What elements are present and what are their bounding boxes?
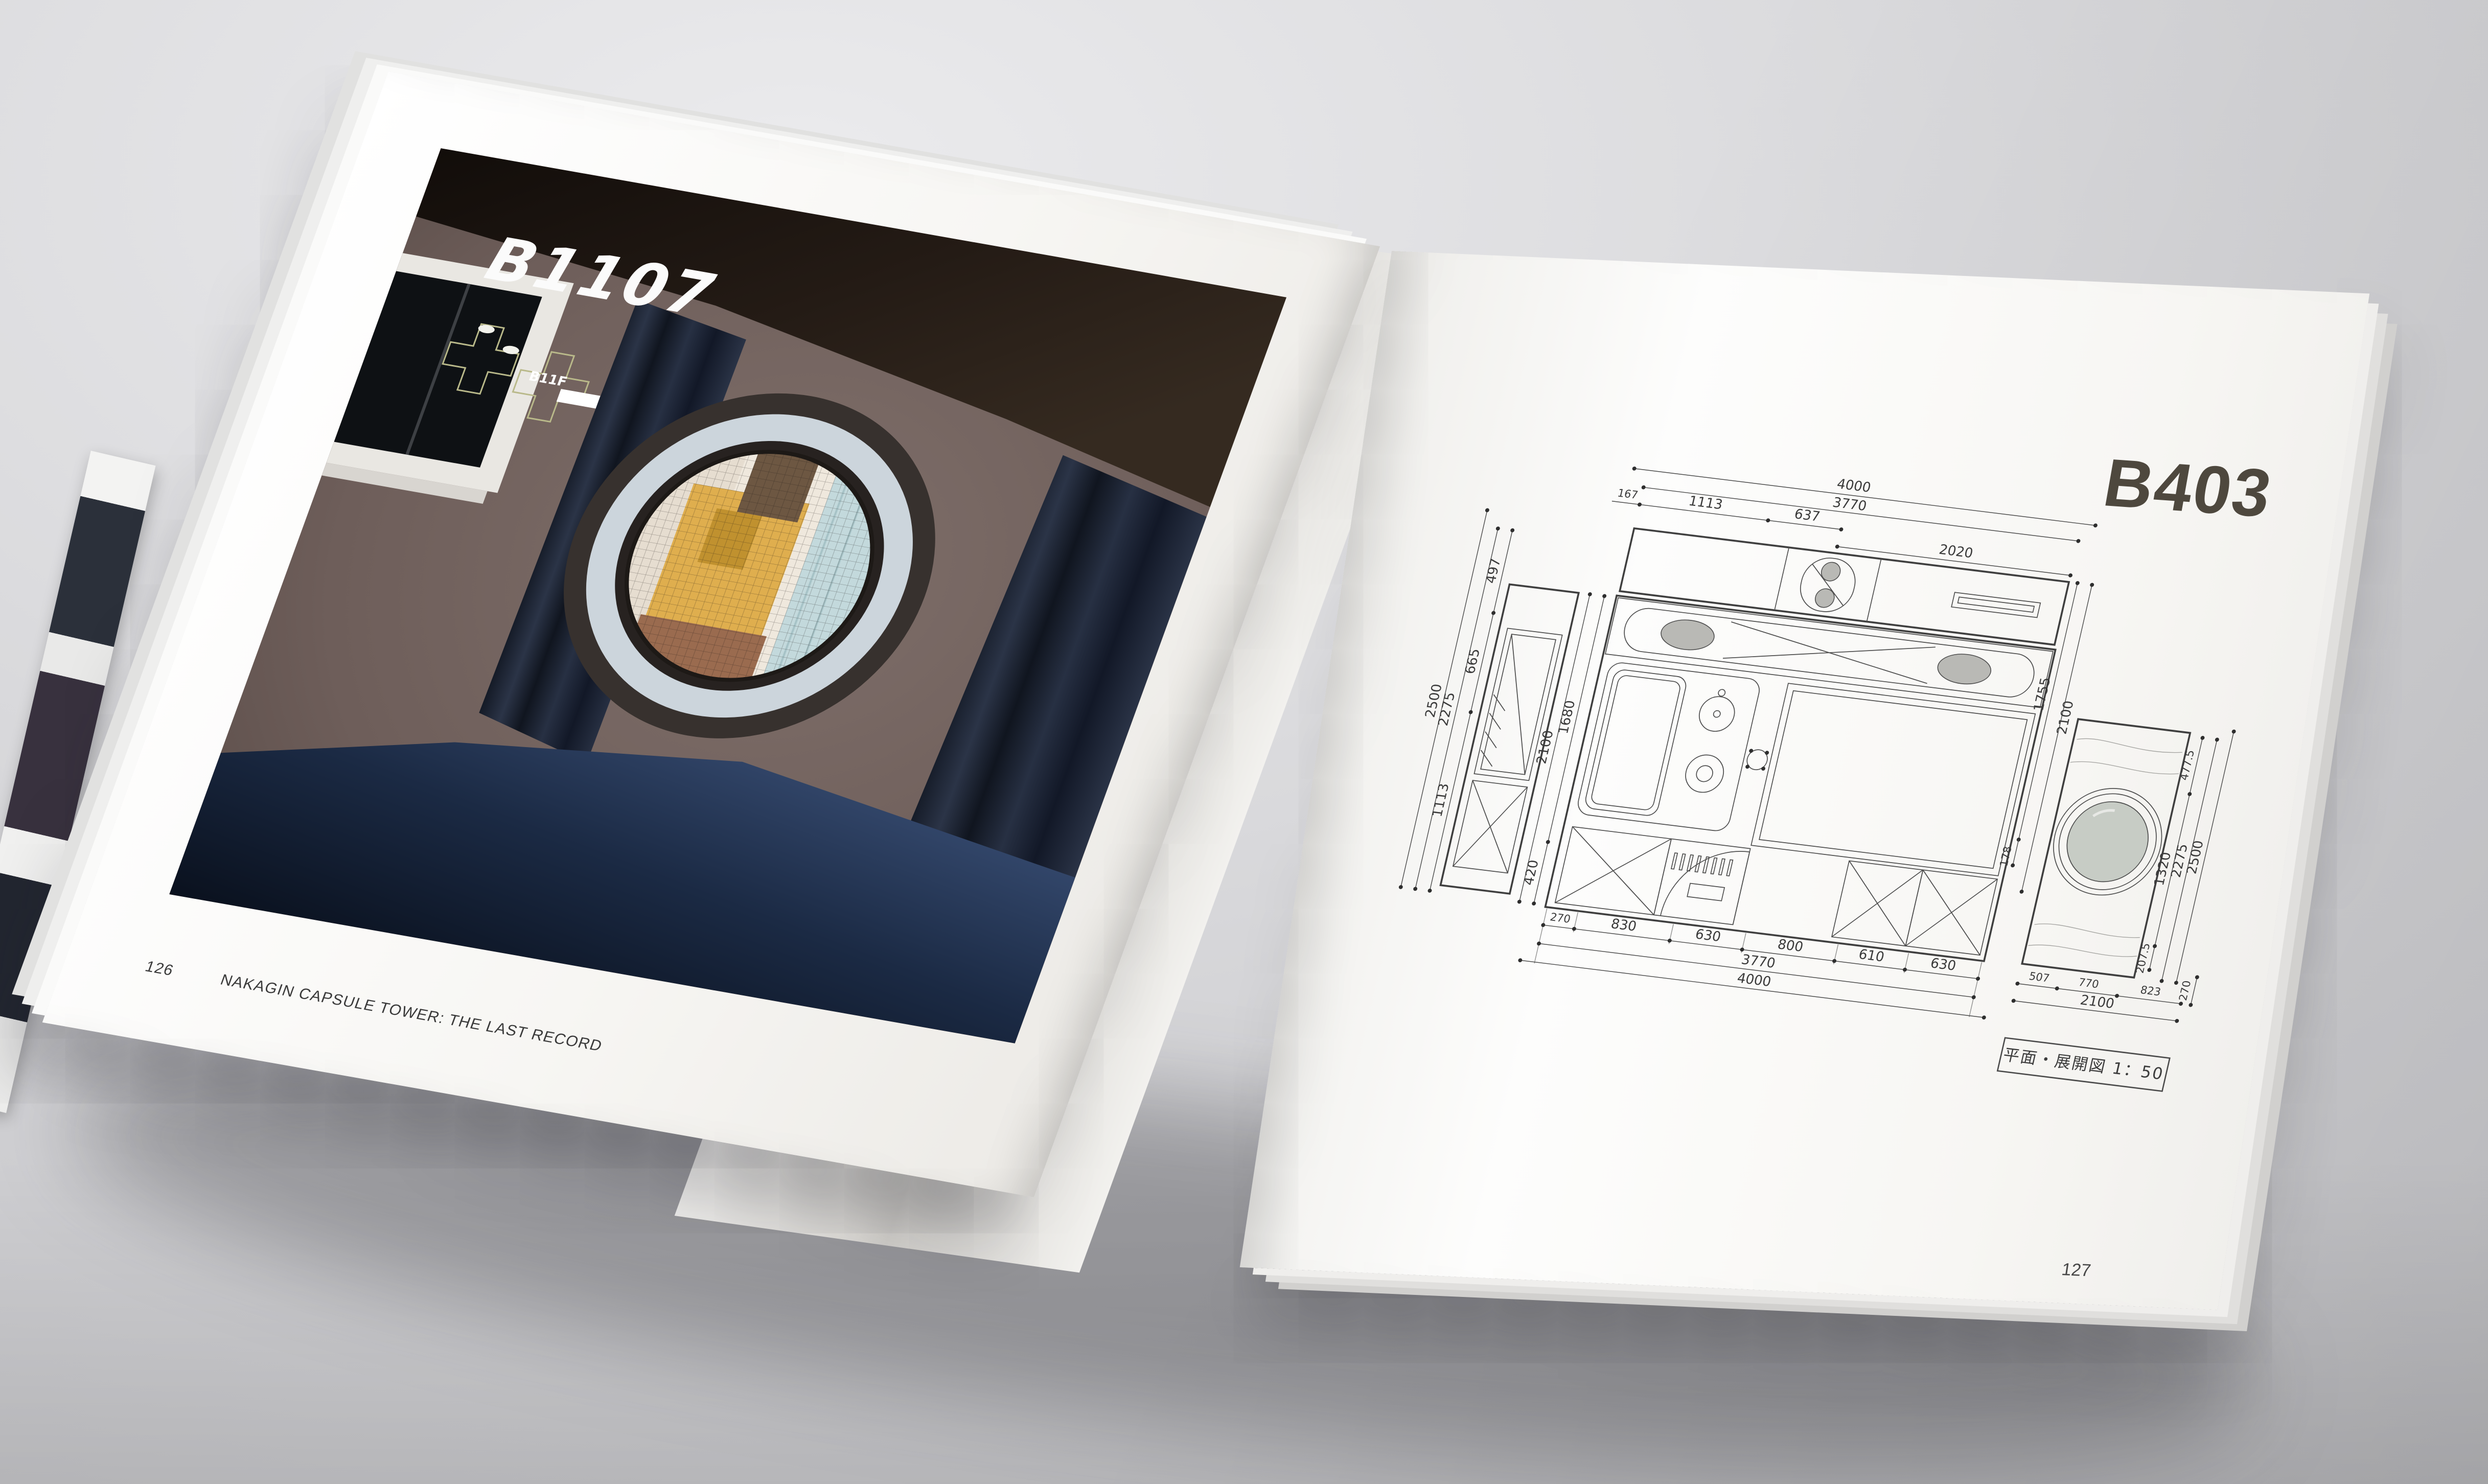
dim-label: 770 <box>2077 976 2100 990</box>
dims-bottom-right: 507 770 823 2100 270 <box>2011 954 2200 1025</box>
dims-right-far: 477.5 1320 207.5 2275 2500 <box>2130 724 2236 985</box>
dim-label: 823 <box>2139 983 2162 998</box>
right-page-number: 127 <box>2060 1260 2092 1281</box>
dim-label: 2100 <box>1534 729 1557 764</box>
dim-label: 167 <box>1617 486 1640 501</box>
entry-door-arc <box>1661 843 1749 925</box>
dim-label: 637 <box>1793 506 1822 525</box>
sink <box>1696 694 1738 733</box>
bathtub <box>1584 669 1688 817</box>
dims-top: 4000 3770 167 1113 637 2020 <box>1607 450 2101 579</box>
dim-label: 1680 <box>1556 700 1579 735</box>
porthole-wall-elevation <box>2022 719 2190 978</box>
capsule-photo-scene: B1107 B11F <box>169 148 1286 1044</box>
dim-label: 2020 <box>1938 542 1974 562</box>
scale-label-box: 平面・展開図 1：50 <box>1997 1038 2170 1091</box>
stool <box>1745 749 1769 771</box>
toilet <box>1682 753 1727 794</box>
dims-left: 2500 2275 497 665 1113 <box>1384 506 1518 893</box>
dim-label: 610 <box>1857 947 1886 965</box>
dim-label: 2100 <box>2054 700 2077 735</box>
speaker-right <box>1934 651 1994 687</box>
dim-label: 2100 <box>2079 992 2115 1012</box>
speaker-left <box>1658 617 1717 653</box>
scale-label: 平面・展開図 1：50 <box>2001 1046 2166 1083</box>
dim-label: 270 <box>2176 980 2194 1002</box>
dim-label: 630 <box>1694 926 1722 945</box>
dim-label: 270 <box>1549 910 1572 925</box>
capsule-plan <box>1545 595 2055 961</box>
left-page-number: 126 <box>143 958 176 980</box>
bathroom-unit <box>1576 661 1762 832</box>
vent-slot <box>1951 592 2040 617</box>
left-wall-elevation <box>1441 584 1579 893</box>
capsule-photo: B1107 B11F <box>169 148 1286 1044</box>
right-page: B403 <box>1240 251 2369 1310</box>
dim-label: 4000 <box>1736 970 1772 990</box>
appliance-vents <box>1671 853 1733 876</box>
headboard-console <box>1605 598 2053 708</box>
dim-label: 830 <box>1609 916 1638 935</box>
dims-bottom: 270 830 630 800 610 630 3770 4000 <box>1518 906 1998 1019</box>
floor-plan-drawing: 4000 3770 167 1113 637 2020 <box>1307 281 2341 1271</box>
photo-of-open-book: B1107 B11F 126 NAKAGIN CAPSULE TOWER: TH… <box>0 0 2488 1484</box>
dim-label: 800 <box>1776 937 1805 955</box>
dim-label: 4000 <box>1835 476 1872 496</box>
dim-label: 1113 <box>1430 782 1453 818</box>
floor-plan-svg: 4000 3770 167 1113 637 2020 <box>1307 281 2341 1271</box>
left-page-footer: 126 NAKAGIN CAPSULE TOWER: THE LAST RECO… <box>143 958 605 1055</box>
left-page-caption: NAKAGIN CAPSULE TOWER: THE LAST RECORD <box>218 971 605 1055</box>
dim-label: 507 <box>2028 969 2051 984</box>
bed <box>1751 683 2035 876</box>
dim-label: 3770 <box>1740 952 1777 971</box>
dim-label: 630 <box>1929 956 1957 974</box>
dim-label: 1755 <box>2031 677 2054 712</box>
